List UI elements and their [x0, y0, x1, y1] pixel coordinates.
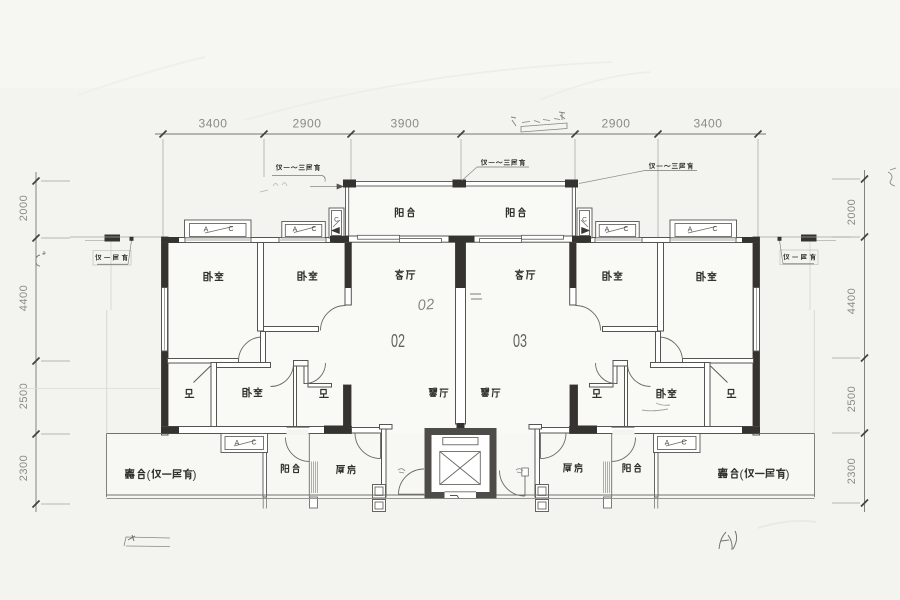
svg-text:2300: 2300 — [18, 455, 30, 481]
svg-text:A: A — [235, 440, 240, 447]
svg-text:02: 02 — [417, 296, 435, 314]
svg-text:3400: 3400 — [694, 119, 723, 131]
svg-text:): ) — [786, 467, 790, 481]
svg-text:2900: 2900 — [293, 119, 322, 131]
svg-text:C: C — [582, 217, 587, 224]
svg-text:C: C — [712, 226, 717, 233]
svg-text:3400: 3400 — [199, 119, 228, 131]
svg-text:(: ( — [147, 468, 151, 482]
svg-text:C: C — [681, 440, 686, 447]
svg-text:A: A — [665, 440, 670, 447]
svg-text:A: A — [688, 227, 693, 234]
svg-text:C: C — [623, 226, 628, 233]
svg-text:C: C — [251, 440, 256, 447]
svg-text:A: A — [204, 227, 209, 234]
svg-text:4400: 4400 — [18, 285, 30, 311]
svg-text:A: A — [605, 227, 610, 234]
svg-text:2900: 2900 — [602, 119, 631, 131]
svg-text:C: C — [334, 217, 339, 224]
svg-text:2000: 2000 — [846, 199, 858, 225]
svg-text:2300: 2300 — [846, 458, 858, 484]
svg-text:03: 03 — [513, 330, 527, 351]
svg-text:2000: 2000 — [18, 195, 30, 221]
svg-text:2500: 2500 — [18, 383, 30, 409]
svg-text:C: C — [311, 226, 316, 233]
svg-text:): ) — [193, 468, 197, 482]
svg-text:4400: 4400 — [846, 288, 858, 314]
svg-text:02: 02 — [391, 330, 405, 351]
svg-text:(: ( — [740, 467, 744, 481]
svg-text:A: A — [293, 227, 298, 234]
svg-text:2500: 2500 — [846, 386, 858, 412]
svg-text:3900: 3900 — [391, 119, 420, 131]
svg-text:C: C — [228, 226, 233, 233]
